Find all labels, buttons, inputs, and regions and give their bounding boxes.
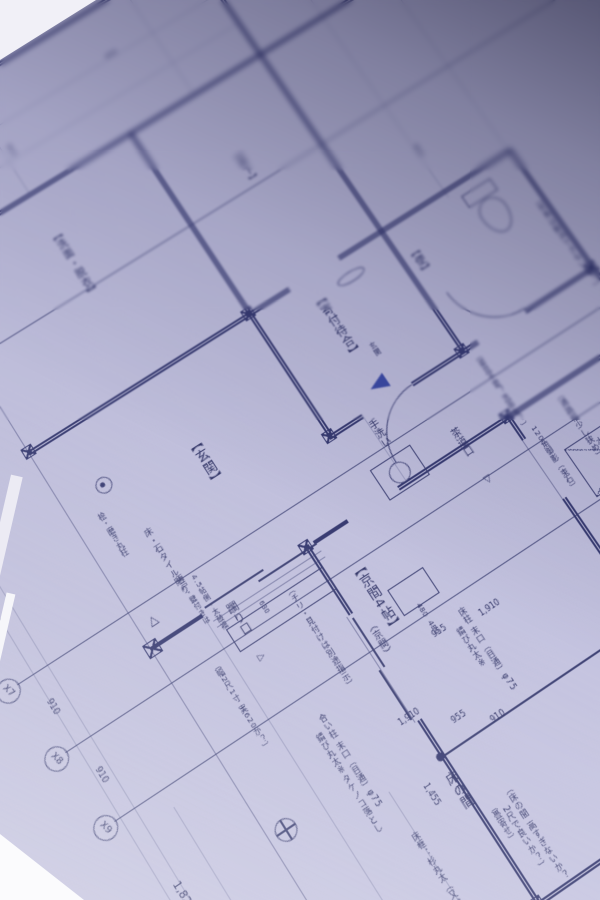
room-label-yoritsuki: 【寄付待合】: [310, 290, 366, 362]
room-label-roka: 【廊下】: [227, 147, 262, 189]
grid-line-x6: [0, 0, 600, 385]
entry-direction-label: 玄関: [367, 340, 384, 358]
genkan-pillar-note: 桧・磨き丸柱: [95, 510, 132, 559]
blueprint-photo: X6 X7 X8 X9 【玄関】 床・石タイル貼り 桧・磨き丸柱 玄関 【寄付待…: [0, 0, 600, 900]
wall-segment: [535, 761, 600, 900]
room-label-tokonoma: 床の間: [441, 767, 479, 812]
plan-line: [0, 24, 237, 234]
plan-line: [0, 85, 29, 193]
dim-1455: 1,455: [421, 782, 442, 808]
entry-direction-arrow: [366, 373, 391, 396]
dim-1910a: 1,910: [477, 597, 502, 618]
wall-segment: [411, 340, 480, 386]
dim-480a: 480: [414, 601, 430, 618]
dim-grid-910a: 910: [44, 697, 62, 717]
dim-910c: 910: [489, 708, 507, 725]
wall-segment: [247, 311, 332, 436]
note-tokogamachi: 床框：杉丸太（又は栗なぐり）: [409, 829, 493, 900]
dim-910-top: 910: [4, 142, 19, 158]
dim-955b: 955: [449, 709, 467, 726]
room-label-genkan: 【玄関】: [182, 434, 228, 491]
wall-segment: [313, 519, 349, 544]
dim-grid-1820b: 1,820: [170, 879, 198, 900]
plan-line: [312, 0, 513, 157]
grid-bubble-x8: X8: [40, 741, 74, 777]
grid-bubble-x7: X7: [0, 674, 26, 709]
plan-line: [249, 0, 449, 198]
vent-symbol: [335, 264, 367, 289]
sadoguchi-triangle-icon: ▽: [480, 472, 496, 488]
dim-grid-910b: 910: [92, 765, 110, 786]
dim-1910b: 1,910: [397, 706, 422, 727]
nijiriguchi-triangle-icon: ▷: [254, 650, 269, 665]
room-label-senmen: 【洗面・脱衣】: [46, 226, 102, 301]
note-chiri: （チリ・見付けは別途指示）: [283, 584, 358, 692]
plan-line: [0, 0, 390, 233]
note-aibashira2: 錆び丸太※タケノコ落とし: [314, 731, 386, 836]
wc-door-arc: [446, 262, 525, 339]
datum-symbol: [270, 813, 302, 846]
blueprint-sheet: X6 X7 X8 X9 【玄関】 床・石タイル貼り 桧・磨き丸柱 玄関 【寄付待…: [0, 0, 600, 900]
wall-segment: [562, 497, 600, 620]
note-shikaku: （死角は解消できないか？）: [531, 194, 600, 292]
dim-910-right: 910: [411, 142, 426, 158]
note-nijiri-size: （幅2尺1寸 実620か？）: [209, 659, 274, 754]
entrance-triangle-icon: △: [143, 610, 163, 631]
dim-455-top: 455: [103, 47, 119, 61]
wall-segment: [417, 718, 445, 757]
